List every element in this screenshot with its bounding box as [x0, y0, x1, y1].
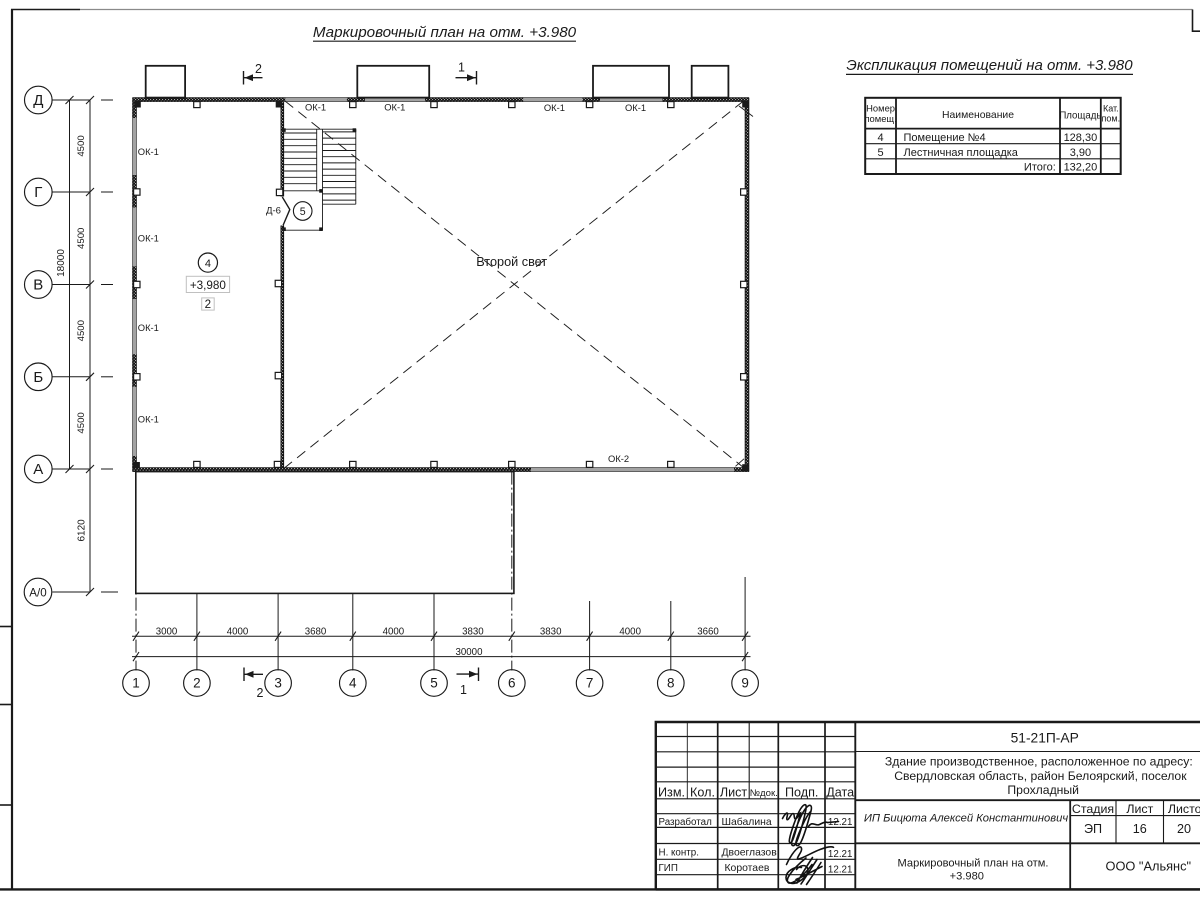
svg-text:Лестничная площадка: Лестничная площадка: [904, 147, 1019, 159]
svg-text:20: 20: [1177, 822, 1191, 836]
svg-text:4000: 4000: [619, 626, 641, 637]
svg-text:4: 4: [349, 676, 357, 691]
svg-text:5: 5: [878, 147, 884, 159]
svg-text:Номер: Номер: [866, 102, 895, 113]
svg-text:Дата: Дата: [826, 785, 854, 799]
svg-text:Кат.: Кат.: [1103, 103, 1119, 113]
svg-text:3830: 3830: [462, 626, 484, 637]
svg-text:30000: 30000: [456, 647, 484, 658]
svg-text:Коротаев: Коротаев: [725, 863, 770, 874]
svg-text:ОК-1: ОК-1: [138, 146, 159, 157]
svg-text:5: 5: [300, 206, 306, 218]
svg-text:Д-6: Д-6: [266, 205, 281, 216]
svg-text:2: 2: [257, 686, 264, 700]
svg-text:Маркировочный план на отм. +3.: Маркировочный план на отм. +3.980: [313, 24, 577, 41]
svg-text:помещ.: помещ.: [864, 113, 896, 124]
svg-text:Г: Г: [34, 184, 42, 201]
svg-text:Разработал: Разработал: [659, 817, 713, 828]
svg-text:ГИП: ГИП: [659, 863, 678, 874]
svg-text:128,30: 128,30: [1064, 132, 1098, 144]
svg-text:Второй свет: Второй свет: [476, 255, 547, 269]
svg-text:ОК-1: ОК-1: [544, 102, 565, 113]
svg-text:ОК-1: ОК-1: [138, 322, 159, 333]
svg-text:4000: 4000: [383, 626, 405, 637]
svg-text:16: 16: [1133, 822, 1147, 836]
svg-text:пом.: пом.: [1102, 113, 1121, 123]
svg-text:Двоеглазов: Двоеглазов: [722, 848, 778, 859]
svg-text:ООО "Альянс": ООО "Альянс": [1106, 859, 1192, 874]
svg-text:3000: 3000: [156, 626, 178, 637]
svg-text:12.21: 12.21: [828, 849, 853, 860]
svg-text:2: 2: [205, 298, 211, 311]
svg-text:ОК-1: ОК-1: [138, 413, 159, 424]
svg-text:В: В: [33, 277, 43, 294]
svg-text:18000: 18000: [56, 249, 67, 277]
svg-text:4: 4: [878, 132, 884, 144]
svg-text:Площадь: Площадь: [1059, 110, 1101, 121]
svg-text:4000: 4000: [227, 626, 249, 637]
svg-text:ОК-2: ОК-2: [608, 453, 629, 464]
svg-text:1: 1: [458, 61, 465, 75]
svg-text:Изм.: Изм.: [658, 785, 685, 799]
svg-text:4500: 4500: [76, 228, 87, 249]
svg-text:3660: 3660: [697, 626, 719, 637]
svg-text:4500: 4500: [76, 320, 87, 341]
svg-text:3,90: 3,90: [1070, 147, 1091, 159]
svg-text:ЭП: ЭП: [1084, 822, 1102, 836]
svg-text:7: 7: [586, 676, 594, 691]
svg-text:4500: 4500: [76, 135, 87, 156]
svg-text:Листов: Листов: [1168, 802, 1200, 816]
svg-text:2: 2: [193, 676, 201, 691]
svg-text:Н. контр.: Н. контр.: [659, 848, 699, 859]
svg-text:12.21: 12.21: [828, 864, 853, 875]
svg-text:ИП Бицюта Алексей Константинов: ИП Бицюта Алексей Константинович: [864, 813, 1068, 825]
svg-text:А/0: А/0: [29, 587, 46, 600]
svg-text:4: 4: [205, 258, 211, 270]
svg-text:Лист: Лист: [1126, 802, 1153, 816]
svg-text:6: 6: [508, 676, 516, 691]
svg-text:8: 8: [667, 676, 675, 691]
svg-text:51-21П-АР: 51-21П-АР: [1011, 730, 1079, 745]
svg-text:ОК-1: ОК-1: [384, 102, 405, 113]
svg-text:6120: 6120: [77, 519, 88, 542]
svg-text:132,20: 132,20: [1064, 162, 1098, 174]
svg-text:Подп.: Подп.: [785, 785, 818, 799]
svg-text:3830: 3830: [540, 626, 562, 637]
svg-text:3: 3: [274, 676, 282, 691]
svg-text:1: 1: [132, 676, 140, 691]
svg-text:ОК-1: ОК-1: [625, 102, 646, 113]
svg-text:Помещение №4: Помещение №4: [904, 132, 986, 144]
svg-text:ОК-1: ОК-1: [138, 233, 159, 244]
svg-text:Наименование: Наименование: [942, 110, 1014, 121]
svg-text:9: 9: [741, 676, 749, 691]
svg-text:Прохладный: Прохладный: [1007, 783, 1079, 797]
svg-text:ОК-1: ОК-1: [305, 102, 326, 113]
svg-text:2: 2: [255, 62, 262, 76]
svg-text:Шабалина: Шабалина: [722, 816, 772, 828]
svg-text:А: А: [33, 461, 43, 478]
svg-text:1: 1: [460, 683, 467, 697]
svg-text:Стадия: Стадия: [1072, 802, 1114, 816]
svg-text:Кол.: Кол.: [690, 785, 715, 799]
svg-text:3680: 3680: [305, 626, 327, 637]
svg-text:Б: Б: [33, 369, 43, 386]
svg-text:Д: Д: [33, 92, 43, 109]
svg-text:4500: 4500: [76, 412, 87, 433]
svg-text:5: 5: [430, 676, 438, 691]
svg-text:+3.980: +3.980: [950, 871, 984, 883]
svg-text:+3,980: +3,980: [190, 279, 227, 292]
svg-text:Экспликация помещений на отм.: Экспликация помещений на отм. +3.980: [846, 57, 1133, 74]
svg-text:Итого:: Итого:: [1024, 162, 1056, 174]
svg-text:Свердловская область, район Бе: Свердловская область, район Белоярский, …: [894, 769, 1187, 783]
svg-text:Маркировочный план на отм.: Маркировочный план на отм.: [898, 858, 1049, 870]
svg-text:Здание производственное, распо: Здание производственное, расположенное п…: [885, 755, 1193, 769]
svg-text:Лист: Лист: [720, 785, 748, 799]
svg-text:№док.: №док.: [750, 788, 778, 799]
